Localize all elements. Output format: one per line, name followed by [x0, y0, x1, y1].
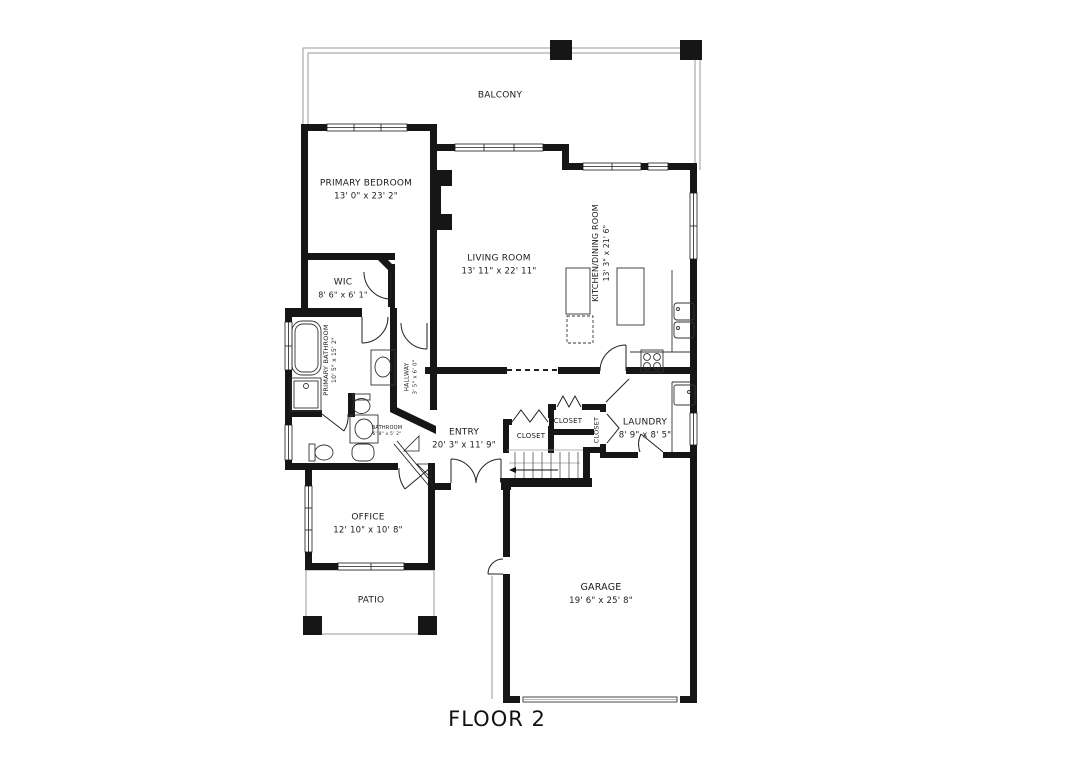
room-label-hallway: HALLWAY 3' 5" x 6' 0" — [404, 360, 421, 395]
laundry-inner-door — [606, 379, 629, 402]
room-label-primary-bathroom: PRIMARY BATHROOM 10' 5" x 15' 2" — [322, 324, 340, 395]
shower-icon — [291, 378, 321, 411]
room-dims: 13' 11" x 22' 11" — [462, 265, 537, 277]
room-name: PRIMARY BATHROOM — [322, 324, 331, 395]
room-label-laundry: LAUNDRY 8' 9" x 8' 5" — [619, 416, 672, 441]
wic-door — [364, 272, 391, 299]
fireplace-icon — [430, 170, 452, 230]
sink-icon — [352, 444, 374, 461]
bathtub-icon — [292, 321, 321, 375]
kitchen-counter — [566, 268, 590, 314]
floorplan-canvas: BALCONY PRIMARY BEDROOM 13' 0" x 23' 2" … — [0, 0, 1086, 768]
room-dims: 8' 6" x 6' 1" — [318, 290, 368, 302]
room-name: CLOSET — [592, 417, 601, 443]
kitchen-fixtures — [566, 268, 694, 372]
toilet-icon — [353, 394, 370, 400]
room-label-wic: WIC 8' 6" x 6' 1" — [318, 277, 368, 302]
garage-door — [523, 697, 677, 702]
kitchen-island — [617, 268, 644, 325]
bathroom-fixtures — [291, 321, 395, 461]
patio-outline — [303, 570, 492, 699]
room-name: ENTRY — [432, 426, 496, 439]
room-label-entry: ENTRY 20' 3" x 11' 9" — [432, 426, 496, 451]
room-dims: 13' 0" x 23' 2" — [320, 190, 412, 202]
floor-title: FLOOR 2 — [448, 707, 546, 731]
room-label-closet-3: CLOSET — [592, 417, 601, 443]
stairs-icon — [507, 450, 583, 478]
room-name: BALCONY — [478, 89, 522, 102]
toilet-icon — [309, 444, 315, 461]
room-dims: 19' 6" x 25' 8" — [569, 595, 633, 607]
room-label-office: OFFICE 12' 10" x 10' 8" — [333, 511, 402, 536]
room-dims: 13' 3" x 21' 6" — [601, 204, 612, 302]
office-door — [399, 468, 430, 489]
room-name: WIC — [318, 277, 368, 290]
room-name: PRIMARY BEDROOM — [320, 177, 412, 190]
room-name: KITCHEN/DINING ROOM — [590, 204, 602, 302]
room-label-bathroom: BATHROOM 6' 8" x 5' 2" — [372, 425, 403, 439]
room-name: OFFICE — [333, 511, 402, 524]
room-label-closet-1: CLOSET — [517, 431, 545, 441]
closet3-doors — [607, 414, 619, 443]
room-name: CLOSET — [554, 416, 582, 426]
dishwasher-icon — [567, 316, 593, 343]
hallway-door — [401, 323, 427, 349]
entry-diagonal-wall — [394, 441, 432, 486]
room-dims: 12' 10" x 10' 8" — [333, 524, 402, 536]
primary-bath-door — [362, 317, 388, 343]
counter-edge — [630, 270, 690, 352]
balcony-post — [550, 40, 572, 60]
room-name: CLOSET — [517, 431, 545, 441]
floorplan-drawing — [0, 0, 1086, 768]
room-label-living-room: LIVING ROOM 13' 11" x 22' 11" — [462, 252, 537, 277]
room-label-primary-bedroom: PRIMARY BEDROOM 13' 0" x 23' 2" — [320, 177, 412, 202]
room-name: LIVING ROOM — [462, 252, 537, 265]
room-label-closet-2: CLOSET — [554, 416, 582, 426]
balcony-post — [680, 40, 702, 60]
room-dims: 3' 5" x 6' 0" — [412, 360, 420, 395]
room-dims: 6' 8" x 5' 2" — [372, 432, 403, 439]
room-dims: 10' 5" x 15' 2" — [331, 324, 340, 395]
garage-side-door — [488, 559, 503, 574]
stairs-arrow — [509, 467, 516, 473]
patio-post — [303, 616, 322, 635]
room-label-patio: PATIO — [358, 594, 385, 607]
room-label-kitchen-dining: KITCHEN/DINING ROOM 13' 3" x 21' 6" — [590, 204, 612, 302]
room-dims: 20' 3" x 11' 9" — [432, 439, 496, 451]
room-dims: 8' 9" x 8' 5" — [619, 429, 672, 441]
room-name: GARAGE — [569, 581, 633, 595]
entry-double-door — [451, 459, 501, 483]
patio-post — [418, 616, 437, 635]
room-label-balcony: BALCONY — [478, 89, 522, 102]
room-name: HALLWAY — [404, 360, 413, 395]
room-label-garage: GARAGE 19' 6" x 25' 8" — [569, 581, 633, 607]
room-name: PATIO — [358, 594, 385, 607]
room-name: LAUNDRY — [619, 416, 672, 429]
